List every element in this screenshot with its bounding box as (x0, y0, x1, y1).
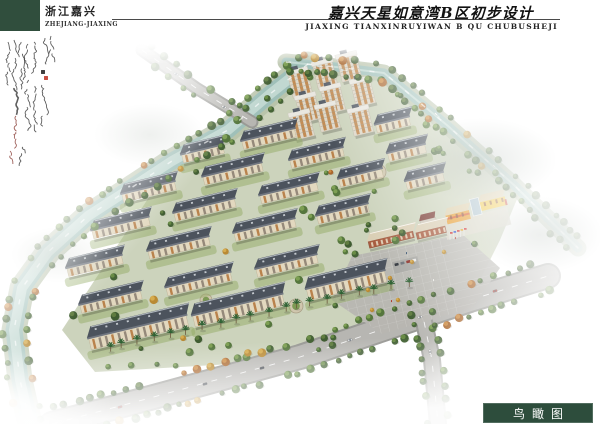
ink-note (25, 89, 31, 131)
drawing-label-text: 鸟瞰图 (506, 405, 570, 422)
brand-color-block (0, 0, 40, 31)
pedestrian (455, 237, 456, 239)
red-ink-note (10, 151, 13, 164)
ink-note (14, 88, 18, 115)
brand-name-chinese: 浙江嘉兴 (45, 3, 97, 19)
ink-note (43, 38, 48, 64)
ink-note (12, 40, 19, 90)
signature-mark (41, 70, 45, 74)
brand-name-english: ZHEJIANG-JIAXING (45, 21, 118, 28)
sheet-title-chinese: 嘉兴天星如意湾B区初步设计 (328, 2, 534, 23)
ink-note (49, 36, 55, 62)
red-seal-stamp (44, 76, 48, 80)
ink-note (31, 42, 36, 73)
presentation-sheet: 浙江嘉兴 ZHEJIANG-JIAXING 嘉兴天星如意湾B区初步设计 JIAX… (0, 0, 600, 424)
drawing-label-box: 鸟瞰图 (483, 403, 593, 423)
title-block: 浙江嘉兴 ZHEJIANG-JIAXING 嘉兴天星如意湾B区初步设计 JIAX… (0, 0, 600, 50)
red-ink-note (14, 116, 17, 148)
aerial-view-rendering (0, 0, 600, 424)
ink-note (41, 85, 49, 126)
ink-note (6, 42, 11, 85)
ink-note (33, 86, 37, 132)
pedestrian (391, 300, 392, 302)
handwritten-review-annotation (0, 30, 80, 180)
pedestrian (406, 252, 407, 254)
pedestrian (433, 279, 434, 281)
sheet-title-english: JIAXING TIANXINRUYIWAN B QU CHUBUSHEJI (305, 22, 558, 31)
ink-note (19, 147, 25, 166)
road-bridge (142, 50, 252, 122)
